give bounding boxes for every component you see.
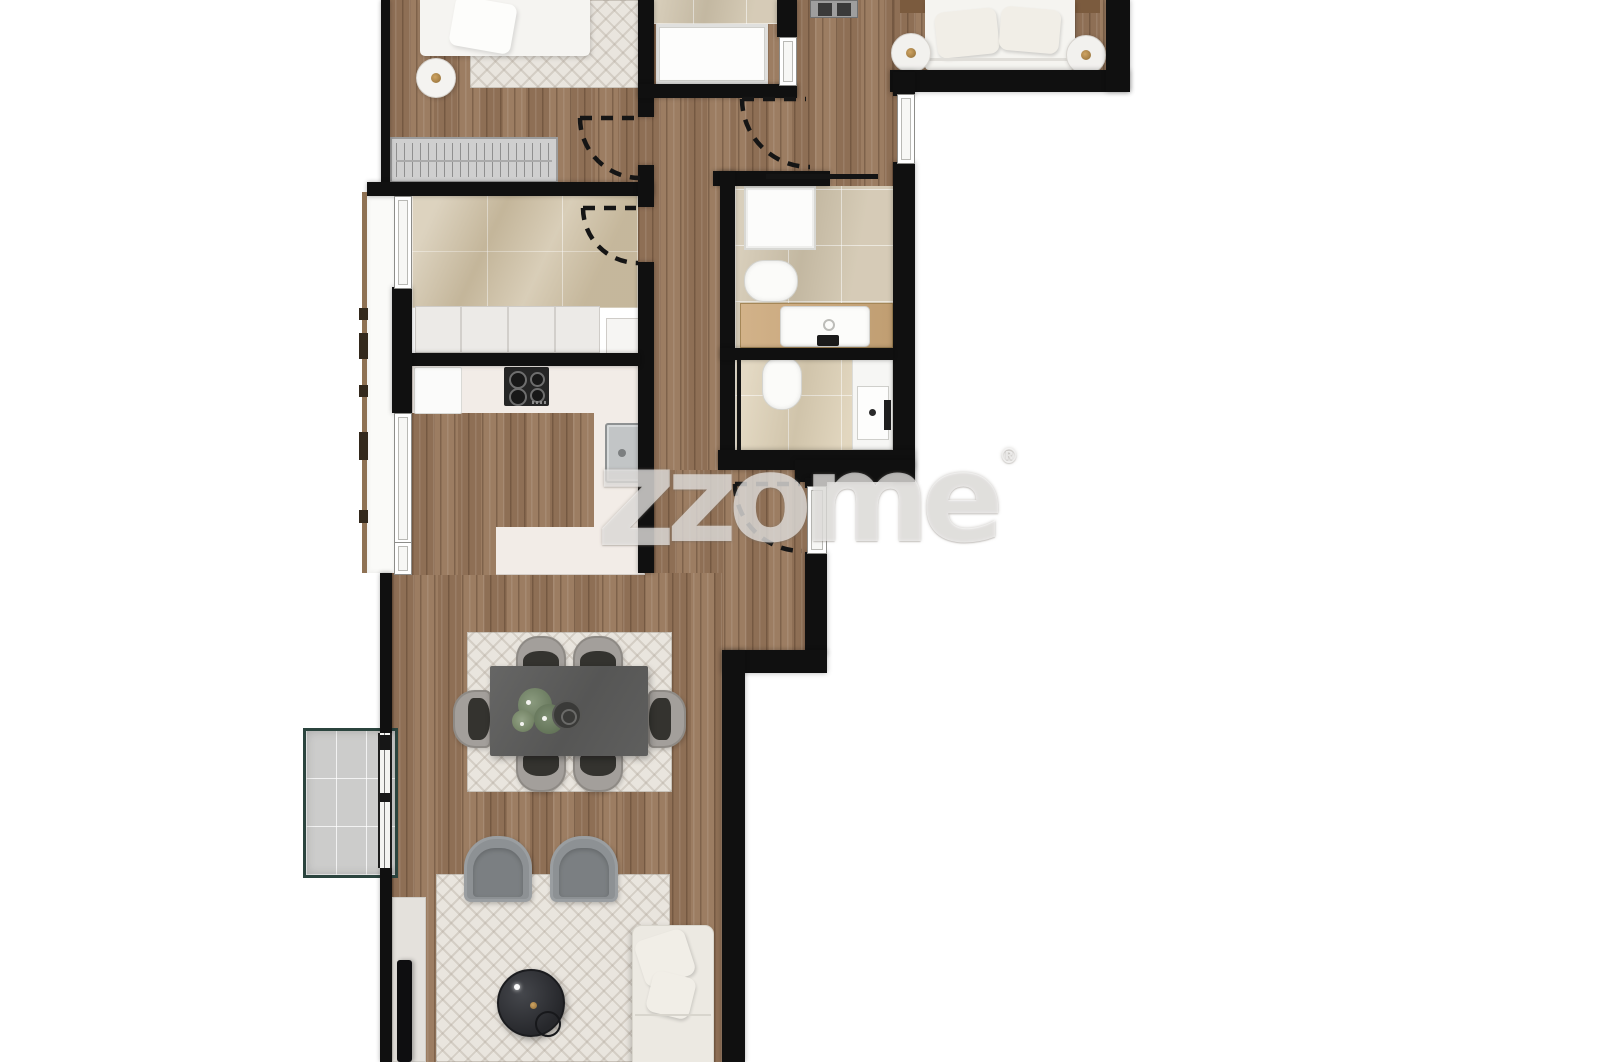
bathroom-2-toilet bbox=[762, 356, 802, 410]
kitchen-sink bbox=[605, 423, 642, 483]
door-balcony-handle-2 bbox=[380, 793, 390, 802]
hall-cabinet-door-1 bbox=[818, 3, 832, 16]
shower-tray-top bbox=[656, 24, 768, 84]
bed-1-lamp bbox=[431, 73, 441, 83]
door-balcony-sliding bbox=[378, 733, 392, 868]
bed-2-nightstand-left bbox=[891, 33, 931, 73]
dining-chair-seat bbox=[649, 698, 671, 740]
bed-2-pillow-2 bbox=[998, 5, 1062, 54]
plant-foliage-3 bbox=[512, 710, 534, 732]
bed-2-lamp-right bbox=[1081, 50, 1091, 60]
cooktop-knobs bbox=[532, 401, 546, 404]
kitchen-appliance bbox=[414, 367, 462, 414]
railing-post-2 bbox=[359, 333, 368, 359]
wall-west-window-pier bbox=[392, 287, 412, 413]
plant-flower-1 bbox=[526, 700, 531, 705]
bed-2-nightstand-right bbox=[1066, 35, 1106, 75]
dining-table bbox=[490, 666, 648, 756]
plant-flower-2 bbox=[542, 716, 547, 721]
wall-bedroom-2-east bbox=[1106, 0, 1130, 92]
dining-chair-seat bbox=[580, 753, 616, 776]
wardrobe-rail bbox=[396, 160, 552, 162]
watermark-registered-icon: ® bbox=[999, 446, 1019, 466]
sofa-pillow-2 bbox=[645, 969, 698, 1020]
door-entrance bbox=[807, 486, 827, 554]
door-balcony-handle-1 bbox=[380, 735, 390, 750]
armchair-1 bbox=[464, 836, 532, 902]
kitchen-sink-drain bbox=[618, 449, 626, 457]
wall-bedroom-2-south bbox=[890, 70, 1130, 92]
bathroom-2-faucet bbox=[884, 400, 891, 430]
sliding-door-bathroom-1 bbox=[766, 174, 878, 179]
cabinet-extra bbox=[606, 318, 641, 355]
window-terrace-end bbox=[394, 542, 412, 575]
wardrobe bbox=[390, 137, 558, 183]
sofa bbox=[632, 925, 714, 1062]
bed-2-pillow-1 bbox=[934, 7, 1000, 59]
dining-chair-seat bbox=[468, 698, 490, 740]
dining-chair-right bbox=[648, 690, 686, 748]
wall-east-b bbox=[893, 162, 915, 482]
coffee-table-gold-dot bbox=[530, 1002, 537, 1009]
laundry-cabinets bbox=[415, 306, 600, 353]
dining-chair-left bbox=[453, 690, 491, 748]
wall-bathrooms-west bbox=[720, 171, 735, 462]
bed-2-foot-line bbox=[925, 58, 1075, 61]
wall-corridor-west-a bbox=[638, 0, 654, 117]
armchair-2-seat bbox=[559, 848, 609, 897]
floor-plan: zzome® bbox=[0, 0, 1600, 1062]
wall-corridor-west-b bbox=[638, 165, 654, 207]
bed-2 bbox=[925, 0, 1075, 70]
bathroom-1-toilet bbox=[744, 260, 798, 302]
kitchen-floor-pocket-b bbox=[412, 527, 496, 575]
coffee-table bbox=[497, 969, 565, 1037]
burner-2 bbox=[509, 388, 527, 406]
bed-1 bbox=[420, 0, 590, 56]
wall-living-east bbox=[722, 650, 745, 1062]
railing-post-5 bbox=[359, 510, 368, 523]
railing-post-1 bbox=[359, 308, 368, 320]
wall-living-west bbox=[380, 868, 392, 1062]
wall-shower-room-east-a bbox=[777, 0, 797, 37]
burner-3 bbox=[530, 372, 545, 387]
bathroom-2-tap-handle bbox=[869, 409, 876, 416]
coffee-table-sparkle bbox=[514, 984, 520, 990]
laundry-tile bbox=[412, 196, 638, 308]
tv bbox=[397, 960, 412, 1062]
wall-shower-room-south bbox=[638, 84, 797, 98]
kitchen-floor-pocket-a bbox=[412, 413, 594, 527]
dining-chair-bottom-2 bbox=[573, 752, 623, 792]
vase bbox=[552, 700, 582, 730]
wall-corridor-west-c bbox=[638, 262, 654, 573]
wall-bedroom-1-west bbox=[381, 0, 390, 184]
sofa-seam bbox=[635, 1014, 711, 1016]
sliding-door-bathroom-2 bbox=[737, 360, 741, 450]
hall-cabinet-door-2 bbox=[837, 3, 851, 16]
bathroom-1-faucet bbox=[817, 335, 839, 346]
bed-2-lamp-left bbox=[906, 48, 916, 58]
dining-chair-bottom-1 bbox=[516, 752, 566, 792]
window-kitchen bbox=[394, 413, 412, 544]
bathroom-1-shower bbox=[744, 186, 816, 250]
shower-room-tile bbox=[640, 0, 797, 24]
wall-laundry-south bbox=[412, 353, 640, 366]
bed-1-nightstand bbox=[416, 58, 456, 98]
wall-entry-east-b bbox=[805, 552, 827, 655]
armchair-1-seat bbox=[473, 848, 523, 897]
railing-post-3 bbox=[359, 385, 368, 397]
hall-cabinet bbox=[810, 0, 858, 18]
armchair-2 bbox=[550, 836, 618, 902]
cooktop bbox=[504, 367, 549, 406]
wall-east-a bbox=[893, 72, 915, 96]
bed-1-blanket bbox=[448, 0, 518, 55]
bathroom-1-drain bbox=[823, 319, 835, 331]
plant-flower-3 bbox=[520, 722, 524, 726]
railing-post-4 bbox=[359, 432, 368, 460]
bathroom-1-sink bbox=[780, 306, 870, 347]
wall-bathrooms-divider bbox=[720, 348, 893, 360]
window-laundry bbox=[394, 196, 412, 289]
vase-rim bbox=[561, 709, 577, 725]
burner-1 bbox=[509, 371, 527, 389]
wall-bedroom-1-south bbox=[367, 182, 654, 196]
window-east bbox=[897, 94, 915, 164]
wall-dining-west bbox=[380, 573, 392, 733]
bathroom-2-vanity bbox=[852, 358, 893, 450]
dining-chair-seat bbox=[523, 753, 559, 776]
door-shower-room bbox=[779, 37, 797, 86]
coffee-table-tray bbox=[535, 1011, 561, 1037]
